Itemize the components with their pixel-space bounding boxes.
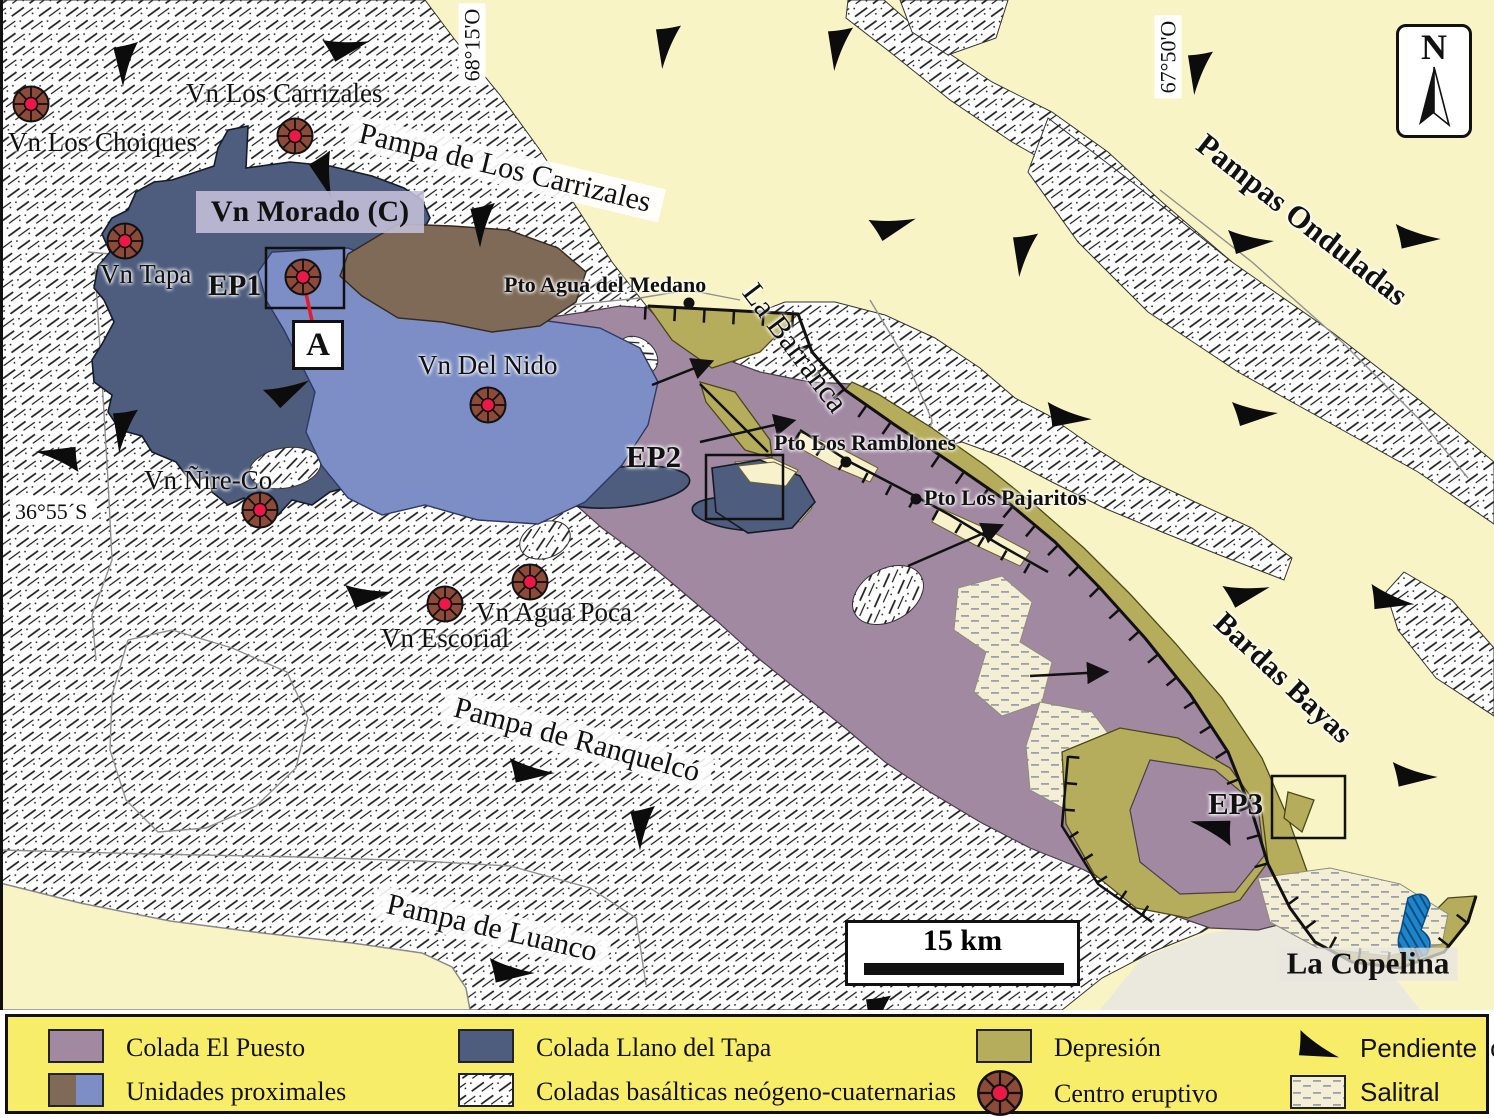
map-frame-edge xyxy=(0,0,3,1010)
label-vn-agua-poca: Vn Agua Poca xyxy=(476,598,632,626)
legend: Colada El Puesto Unidades proximales Col… xyxy=(5,1014,1489,1114)
label-vn-nire-co: Vn Ñire-Co xyxy=(144,466,272,494)
legend-label: Unidades proximales xyxy=(126,1077,346,1107)
label-pto-agua-del-medano: Pto Agua del Medano xyxy=(504,273,706,296)
label-la-copelina: La Copelina xyxy=(1279,948,1458,981)
scale-label: 15 km xyxy=(848,924,1077,958)
north-arrow: N xyxy=(1396,24,1472,138)
legend-label: Salitral xyxy=(1360,1077,1439,1108)
label-vn-los-carrizales: Vn Los Carrizales xyxy=(186,79,382,107)
label-vn-tapa: Vn Tapa xyxy=(100,260,191,288)
legend-label: Coladas basálticas neógeno-cuaternarias xyxy=(536,1077,956,1107)
label-ep1: EP1 xyxy=(208,270,261,302)
map-canvas xyxy=(0,0,1494,1010)
legend-label: Centro eruptivo xyxy=(1054,1079,1218,1109)
label-vn-del-nido: Vn Del Nido xyxy=(418,351,557,379)
scale-bar-rule xyxy=(864,963,1064,975)
label-a-box: A xyxy=(292,320,344,370)
label-vn-morado: Vn Morado (C) xyxy=(196,191,424,233)
north-arrow-icon xyxy=(1412,65,1456,129)
swatch-colada-el-puesto xyxy=(48,1029,104,1063)
label-vn-los-choiques: Vn Los Choiques xyxy=(8,128,197,156)
map-area: Vn Los Choiques Vn Los Carrizales Vn Mor… xyxy=(0,0,1494,1010)
label-ep3: EP3 xyxy=(1208,788,1263,821)
eruptive-center-icon xyxy=(974,1067,1026,1118)
north-label: N xyxy=(1399,29,1469,65)
legend-label: Pendiente local xyxy=(1360,1033,1494,1064)
label-ep2: EP2 xyxy=(626,441,681,474)
swatch-depresion xyxy=(976,1029,1032,1063)
swatch-salitral xyxy=(1290,1075,1346,1109)
coordinate-top-right: 67°50'O xyxy=(1154,16,1181,99)
legend-label: Colada Llano del Tapa xyxy=(536,1033,771,1063)
legend-label: Colada El Puesto xyxy=(126,1033,305,1063)
geological-map-figure: Vn Los Choiques Vn Los Carrizales Vn Mor… xyxy=(0,0,1494,1118)
swatch-llano-del-tapa xyxy=(458,1029,514,1063)
legend-label: Depresión xyxy=(1054,1033,1161,1063)
coordinate-left: 36°55´S xyxy=(10,498,92,525)
legend-item-centro-eruptivo: Centro eruptivo xyxy=(974,1067,1026,1105)
label-vn-escorial: Vn Escorial xyxy=(381,624,509,652)
legend-item-pendiente-local: Pendiente local xyxy=(1290,1029,1344,1067)
slope-arrow-icon xyxy=(1290,1029,1344,1069)
swatch-coladas-basalticas xyxy=(458,1073,514,1107)
label-pto-los-pajaritos: Pto Los Pajaritos xyxy=(924,486,1087,509)
swatch-unidades-proximales xyxy=(48,1073,104,1107)
label-pto-los-ramblones: Pto Los Ramblones xyxy=(774,431,956,454)
coordinate-top-left: 68°15'O xyxy=(458,4,485,87)
scale-bar: 15 km xyxy=(845,920,1080,986)
